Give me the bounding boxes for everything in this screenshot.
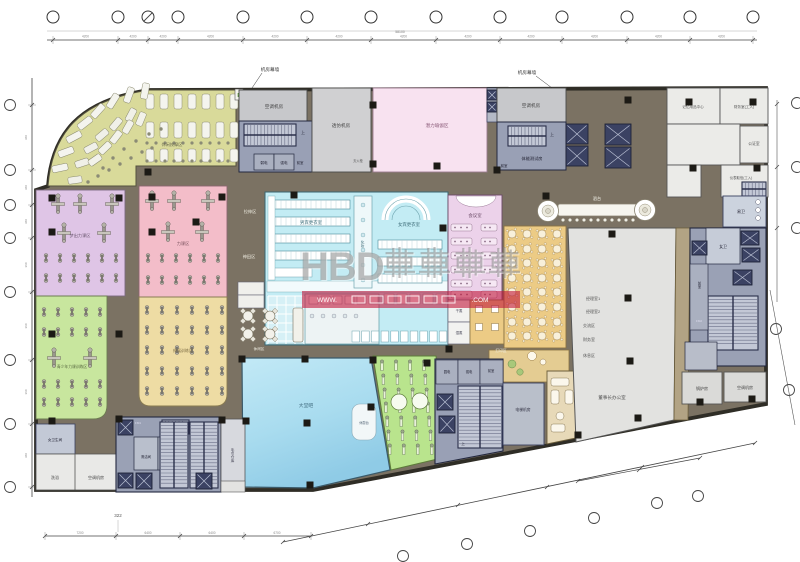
svg-text:4200: 4200 [129, 35, 136, 39]
svg-text:360: 360 [24, 323, 28, 328]
svg-text:经理室2: 经理室2 [586, 308, 601, 314]
svg-text:潜力瑜伽区: 潜力瑜伽区 [426, 122, 449, 129]
svg-text:上: 上 [461, 441, 465, 446]
svg-text:FM2: FM2 [696, 319, 702, 323]
svg-text:男宾更衣室: 男宾更衣室 [300, 219, 323, 226]
svg-text:4200: 4200 [82, 35, 89, 39]
svg-text:58100: 58100 [395, 30, 405, 34]
svg-text:干蒸: 干蒸 [456, 308, 463, 313]
svg-text:经理室1: 经理室1 [586, 295, 601, 301]
svg-text:4200: 4200 [591, 35, 598, 39]
svg-text:前室: 前室 [697, 281, 701, 289]
svg-text:拉伸区: 拉伸区 [244, 208, 257, 215]
svg-text:强电: 强电 [280, 160, 288, 165]
svg-text:电梯机房: 电梯机房 [515, 407, 530, 412]
svg-text:机房幕墙: 机房幕墙 [261, 66, 280, 73]
svg-text:360: 360 [24, 389, 28, 394]
svg-text:园电: 园电 [444, 369, 451, 374]
svg-text:360: 360 [24, 135, 28, 140]
svg-text:.COM: .COM [472, 297, 489, 304]
svg-text:伸展训练区: 伸展训练区 [173, 347, 193, 353]
svg-text:财务室: 财务室 [583, 336, 595, 342]
svg-text:322: 322 [114, 513, 122, 518]
svg-text:4200: 4200 [400, 35, 407, 39]
svg-text:4200: 4200 [271, 35, 278, 39]
svg-text:力课区: 力课区 [177, 240, 190, 247]
svg-text:空调机房: 空调机房 [265, 103, 284, 110]
svg-text:易卫: 易卫 [737, 209, 745, 214]
svg-text:湿蒸: 湿蒸 [456, 330, 463, 335]
svg-text:梦出力课区: 梦出力课区 [70, 232, 91, 239]
svg-text:打印区: 打印区 [495, 348, 507, 353]
svg-text:体能测试房: 体能测试房 [522, 155, 543, 162]
svg-text:董事长办公室: 董事长办公室 [598, 394, 626, 401]
svg-text:毛巾仓库: 毛巾仓库 [230, 447, 235, 463]
svg-text:泗台: 泗台 [593, 195, 601, 202]
svg-text:锅炉房: 锅炉房 [696, 385, 708, 391]
svg-text:女宾更衣室: 女宾更衣室 [398, 221, 421, 228]
svg-text:强电: 强电 [466, 369, 473, 374]
svg-text:前室: 前室 [488, 368, 495, 373]
svg-text:青少年力课训练区: 青少年力课训练区 [57, 364, 88, 369]
svg-text:6400: 6400 [208, 531, 215, 535]
svg-text:360: 360 [24, 219, 28, 224]
svg-text:神田区: 神田区 [243, 253, 256, 260]
svg-text:4200: 4200 [207, 35, 214, 39]
svg-text:上: 上 [301, 129, 305, 135]
svg-text:清洁间: 清洁间 [141, 454, 152, 459]
svg-text:前室: 前室 [501, 163, 508, 168]
svg-text:7200: 7200 [76, 531, 83, 535]
svg-text:空调机房: 空调机房 [88, 474, 104, 480]
svg-text:HBD: HBD [300, 245, 384, 289]
svg-text:大堂吧: 大堂吧 [299, 402, 314, 409]
svg-text:6700: 6700 [273, 531, 280, 535]
svg-text:灭火栓: 灭火栓 [353, 158, 363, 163]
svg-text:休息区: 休息区 [583, 352, 595, 358]
svg-text:女卫: 女卫 [719, 244, 727, 249]
svg-text:空调机房: 空调机房 [737, 384, 753, 390]
svg-text:360: 360 [24, 453, 28, 458]
svg-text:360: 360 [24, 262, 28, 267]
svg-text:洗浴: 洗浴 [51, 474, 59, 480]
svg-text:空调机房: 空调机房 [522, 102, 541, 109]
svg-text:4200: 4200 [335, 35, 342, 39]
svg-text:休闲按摩区: 休闲按摩区 [162, 141, 183, 148]
svg-text:休憩台: 休憩台 [359, 420, 369, 425]
svg-text:6400: 6400 [144, 531, 151, 535]
svg-text:上: 上 [550, 131, 554, 137]
svg-text:机房幕墙: 机房幕墙 [518, 69, 537, 76]
svg-text:女卫生间: 女卫生间 [48, 437, 63, 442]
svg-text:休闲区: 休闲区 [254, 346, 265, 351]
svg-text:交流区: 交流区 [583, 322, 595, 328]
svg-text:4200: 4200 [527, 35, 534, 39]
svg-text:会议室: 会议室 [468, 212, 482, 219]
svg-text:4200: 4200 [718, 35, 725, 39]
svg-text:仪表取信(工入): 仪表取信(工入) [730, 175, 753, 180]
svg-text:前室: 前室 [297, 160, 304, 165]
svg-text:WWW.: WWW. [317, 297, 337, 304]
svg-text:4200: 4200 [464, 35, 471, 39]
svg-text:公证室: 公证室 [748, 141, 760, 146]
svg-text:4200: 4200 [159, 35, 166, 39]
svg-text:360: 360 [24, 185, 28, 190]
svg-text:FM1: FM1 [135, 421, 141, 425]
svg-text:4200: 4200 [655, 35, 662, 39]
svg-text:弱电: 弱电 [260, 160, 268, 165]
svg-text:透仿机房: 透仿机房 [332, 122, 351, 129]
